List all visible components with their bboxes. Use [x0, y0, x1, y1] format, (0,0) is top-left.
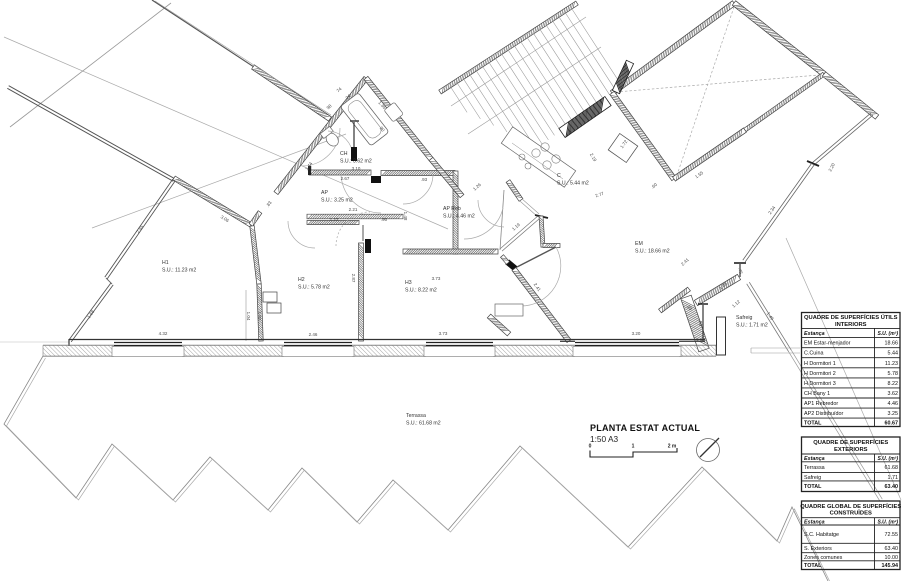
svg-text:2.46: 2.46	[309, 332, 318, 337]
svg-text:Zones comunes: Zones comunes	[804, 555, 843, 561]
svg-text:S.U.: 18.66 m2: S.U.: 18.66 m2	[635, 249, 670, 255]
svg-text:1:50 A3: 1:50 A3	[590, 434, 619, 444]
svg-text:AP Reb: AP Reb	[443, 206, 461, 212]
svg-text:TOTAL: TOTAL	[804, 420, 822, 426]
svg-text:H1: H1	[162, 260, 169, 266]
svg-text:1: 1	[632, 444, 635, 450]
svg-text:2 m: 2 m	[668, 444, 677, 450]
svg-text:2.87: 2.87	[351, 274, 356, 283]
svg-text:3.25: 3.25	[888, 411, 899, 417]
svg-text:72.55: 72.55	[885, 532, 899, 538]
svg-text:EXTERIORS: EXTERIORS	[834, 447, 868, 453]
svg-text:Estança: Estança	[804, 456, 825, 462]
svg-text:S.U. (m²): S.U. (m²)	[877, 456, 898, 462]
svg-text:INTERIORS: INTERIORS	[835, 322, 867, 328]
svg-text:Terrassa: Terrassa	[406, 413, 426, 419]
svg-text:S.U.: 5.78 m2: S.U.: 5.78 m2	[298, 285, 330, 291]
svg-text:3.20: 3.20	[632, 331, 641, 336]
svg-text:QUADRE DE SUPERFÍCIES ÚTILS: QUADRE DE SUPERFÍCIES ÚTILS	[804, 313, 898, 321]
svg-text:S. Exteriors: S. Exteriors	[804, 546, 832, 552]
svg-text:Estança: Estança	[804, 519, 825, 525]
svg-text:1.23: 1.23	[330, 217, 339, 222]
svg-text:.90: .90	[381, 217, 388, 222]
svg-text:4.32: 4.32	[159, 331, 168, 336]
svg-text:3.10: 3.10	[352, 166, 361, 171]
svg-text:63.40: 63.40	[885, 484, 899, 490]
svg-text:8.22: 8.22	[888, 381, 899, 387]
svg-text:PLANTA ESTAT ACTUAL: PLANTA ESTAT ACTUAL	[590, 423, 700, 433]
svg-text:TOTAL: TOTAL	[804, 563, 822, 569]
svg-text:C: C	[557, 173, 561, 179]
svg-text:4.46: 4.46	[888, 401, 899, 407]
svg-text:S.U. (m²): S.U. (m²)	[877, 519, 898, 525]
svg-text:1.48: 1.48	[403, 212, 408, 221]
svg-text:H2: H2	[298, 277, 305, 283]
svg-text:18.66: 18.66	[885, 341, 899, 347]
svg-text:10.00: 10.00	[885, 555, 899, 561]
svg-text:63.40: 63.40	[885, 546, 899, 552]
svg-text:3.73: 3.73	[439, 331, 448, 336]
svg-text:1.04: 1.04	[246, 312, 251, 321]
svg-text:Safreig: Safreig	[804, 475, 821, 481]
svg-text:H Dormitori 3: H Dormitori 3	[804, 381, 836, 387]
svg-text:CH: CH	[340, 151, 348, 157]
svg-text:3.73: 3.73	[432, 276, 441, 281]
svg-text:Terrassa: Terrassa	[804, 465, 825, 471]
svg-text:QUADRE DE SUPERFÍCIES: QUADRE DE SUPERFÍCIES	[813, 438, 888, 446]
svg-text:5.78: 5.78	[888, 371, 899, 377]
svg-text:S.U.: 3.25 m2: S.U.: 3.25 m2	[321, 198, 353, 204]
svg-text:CONSTRUÏDES: CONSTRUÏDES	[830, 510, 872, 517]
svg-text:S.U.: 61.68 m2: S.U.: 61.68 m2	[406, 421, 441, 427]
svg-text:3.62: 3.62	[888, 391, 899, 397]
svg-text:H Dormitori 2: H Dormitori 2	[804, 371, 836, 377]
svg-text:S.U.: 4.46 m2: S.U.: 4.46 m2	[443, 214, 475, 220]
svg-text:S.U.: 8.22 m2: S.U.: 8.22 m2	[405, 288, 437, 294]
svg-text:2.67: 2.67	[341, 176, 350, 181]
svg-text:Safreig: Safreig	[736, 315, 753, 321]
svg-text:TOTAL: TOTAL	[804, 484, 822, 490]
svg-text:61.68: 61.68	[885, 465, 899, 471]
svg-text:2.21: 2.21	[349, 207, 358, 212]
svg-text:EM Estar-menjador: EM Estar-menjador	[804, 341, 851, 347]
svg-text:Estança: Estança	[804, 331, 825, 337]
svg-text:QUADRE GLOBAL DE SUPERFÍCIES: QUADRE GLOBAL DE SUPERFÍCIES	[800, 502, 901, 510]
svg-text:11.23: 11.23	[885, 361, 898, 367]
svg-text:S.C. Habitatge: S.C. Habitatge	[804, 532, 839, 538]
svg-text:0: 0	[589, 444, 592, 450]
svg-text:S.U.: 5.44 m2: S.U.: 5.44 m2	[557, 181, 589, 187]
svg-text:.86: .86	[698, 320, 704, 327]
svg-text:145.94: 145.94	[882, 563, 899, 569]
svg-text:EM: EM	[635, 241, 643, 247]
svg-text:S.U.: 11.23 m2: S.U.: 11.23 m2	[162, 268, 196, 274]
svg-text:1.02: 1.02	[257, 312, 262, 321]
svg-text:S.U. (m²): S.U. (m²)	[877, 331, 898, 337]
svg-text:CH Bany 1: CH Bany 1	[804, 391, 830, 397]
svg-text:S.U.: 1.71 m2: S.U.: 1.71 m2	[736, 323, 768, 329]
svg-text:AP2 Distribuïdor: AP2 Distribuïdor	[804, 411, 843, 417]
svg-text:C.Cuina: C.Cuina	[804, 351, 823, 357]
svg-text:H3: H3	[405, 280, 412, 286]
svg-text:H Dormitori 1: H Dormitori 1	[804, 361, 836, 367]
svg-text:S.U.: 3.62 m2: S.U.: 3.62 m2	[340, 159, 372, 165]
svg-text:5.44: 5.44	[888, 351, 899, 357]
svg-text:60.67: 60.67	[885, 420, 899, 426]
svg-text:.93: .93	[421, 177, 428, 182]
svg-text:AP1 Rebredor: AP1 Rebredor	[804, 401, 838, 407]
svg-text:AP: AP	[321, 190, 328, 196]
svg-text:1.71: 1.71	[888, 475, 899, 481]
